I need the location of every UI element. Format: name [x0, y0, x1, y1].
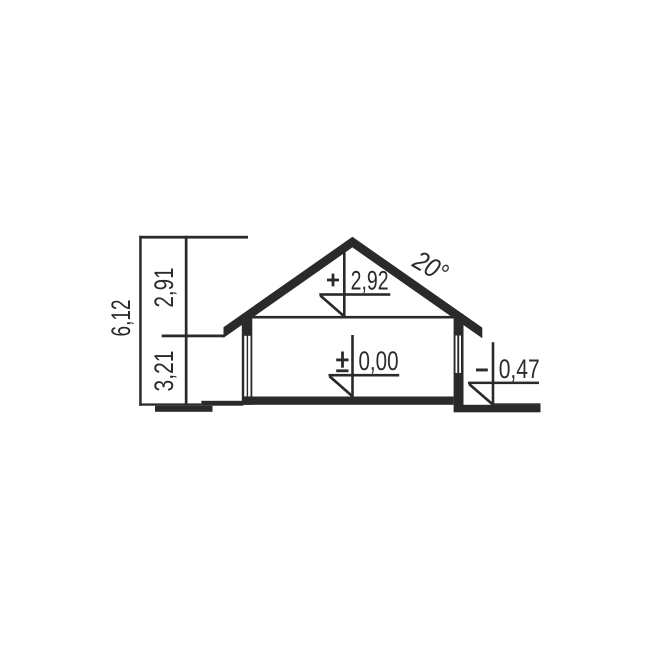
svg-text:2,91: 2,91	[149, 268, 179, 308]
svg-text:2,92: 2,92	[351, 266, 389, 296]
svg-text:3,21: 3,21	[149, 351, 179, 392]
svg-text:6,12: 6,12	[106, 300, 136, 337]
svg-text:0,47: 0,47	[499, 354, 540, 384]
svg-text:0,00: 0,00	[359, 346, 399, 376]
